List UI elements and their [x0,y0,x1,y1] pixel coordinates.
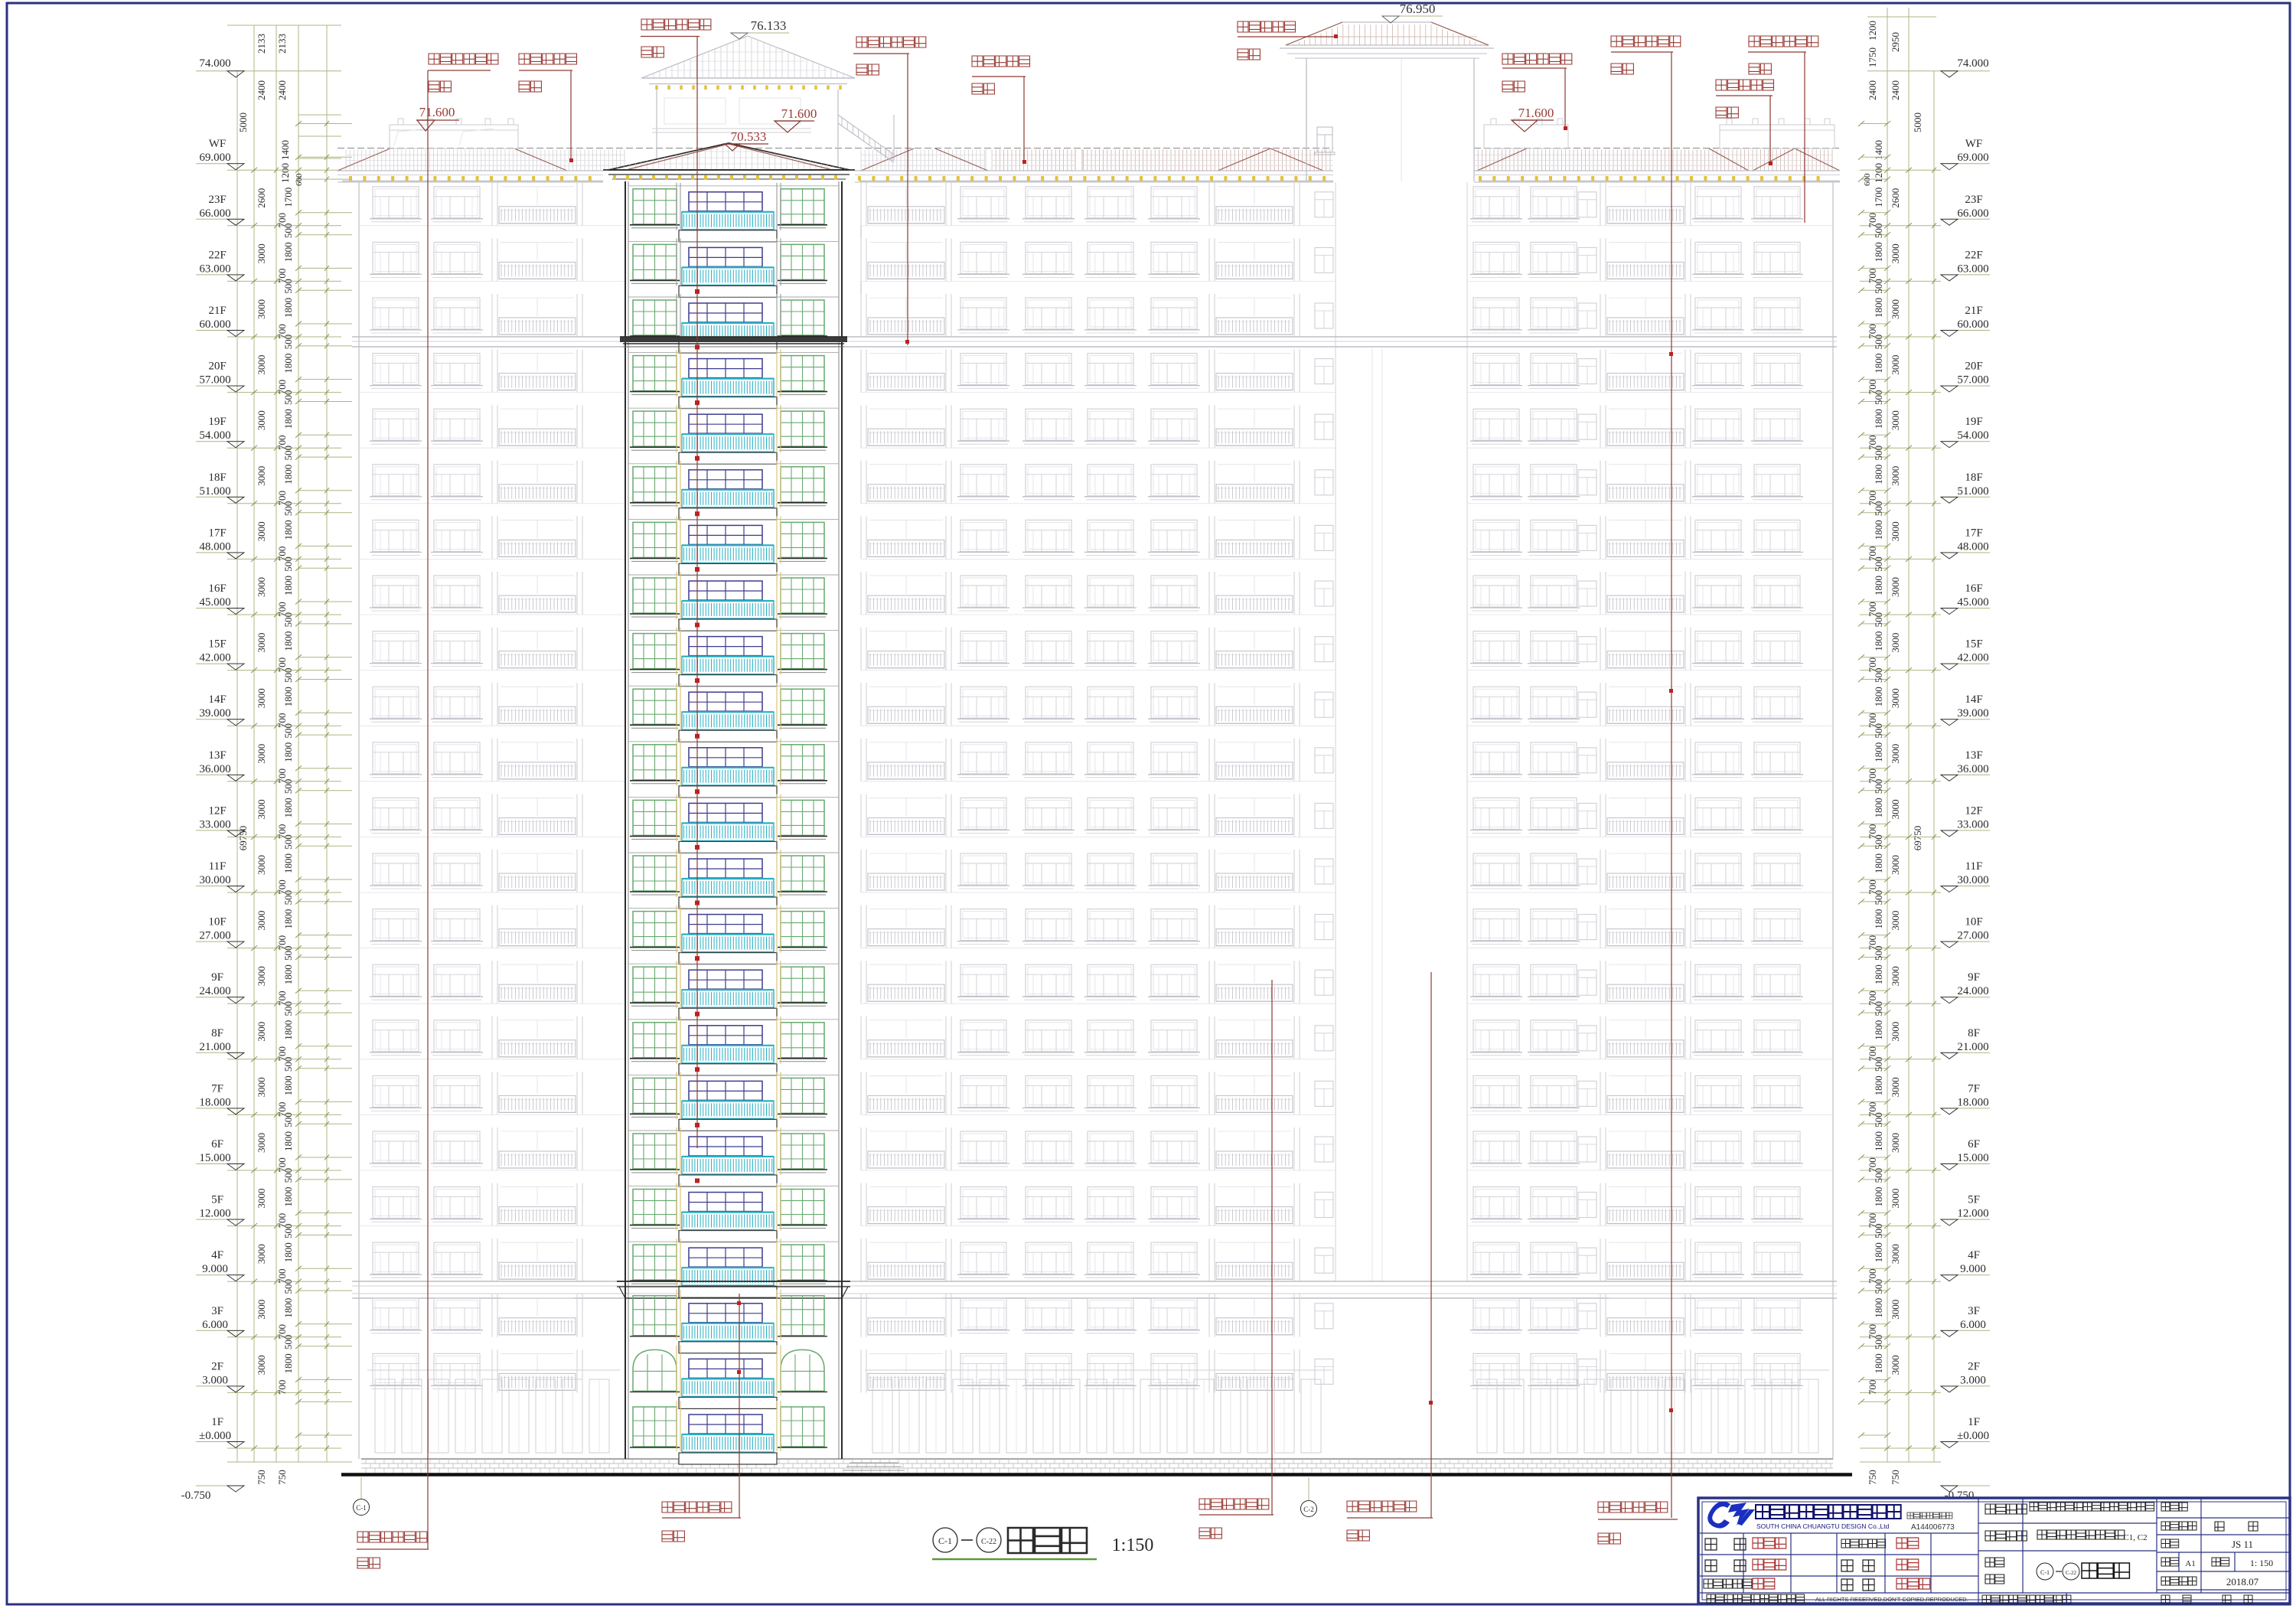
svg-text:1800: 1800 [282,1353,294,1373]
svg-text:500: 500 [282,723,294,739]
svg-text:1800: 1800 [1873,298,1884,318]
svg-text:48.000: 48.000 [1957,540,1988,553]
svg-text:1: 150: 1: 150 [2250,1558,2273,1568]
svg-text:3000: 3000 [256,1189,267,1209]
svg-text:11F: 11F [209,860,227,873]
svg-text:57.000: 57.000 [1957,374,1988,387]
svg-text:7F: 7F [211,1082,223,1095]
svg-text:1800: 1800 [282,964,294,984]
svg-text:21F: 21F [208,305,226,317]
svg-text:3000: 3000 [256,577,267,597]
svg-text:71.600: 71.600 [1518,106,1554,120]
svg-text:500: 500 [1873,556,1884,572]
svg-text:76.950: 76.950 [1400,2,1436,16]
svg-text:6.000: 6.000 [202,1319,228,1331]
svg-text:1750: 1750 [1867,47,1878,67]
svg-text:3000: 3000 [1890,855,1901,875]
svg-text:21.000: 21.000 [199,1041,230,1053]
svg-text:1800: 1800 [1873,1353,1884,1373]
svg-text:1800: 1800 [282,520,294,540]
svg-text:3000: 3000 [1890,1244,1901,1264]
svg-text:2600: 2600 [256,188,267,208]
svg-text:3000: 3000 [1890,1355,1901,1375]
svg-text:3000: 3000 [256,855,267,875]
svg-text:1800: 1800 [282,742,294,762]
svg-text:14F: 14F [1965,693,1982,706]
svg-text:5000: 5000 [1912,113,1923,132]
svg-text:500: 500 [282,1001,294,1016]
svg-text:15F: 15F [1965,638,1982,651]
svg-text:500: 500 [282,834,294,850]
svg-text:500: 500 [282,556,294,572]
svg-text:600: 600 [295,173,304,186]
svg-text:22F: 22F [1965,249,1982,261]
svg-text:3000: 3000 [256,688,267,708]
svg-text:13F: 13F [208,749,226,762]
svg-text:69750: 69750 [237,826,249,851]
svg-text:69.000: 69.000 [199,152,230,164]
svg-text:3000: 3000 [1890,799,1901,819]
svg-text:6F: 6F [211,1138,223,1150]
svg-text:3F: 3F [1968,1305,1980,1317]
svg-text:SOUTH CHINA CHUANGTU DESIGN Co: SOUTH CHINA CHUANGTU DESIGN Co.,Ltd [1756,1522,1890,1530]
svg-text:66.000: 66.000 [1957,207,1988,220]
svg-text:A1: A1 [2185,1559,2195,1568]
svg-text:3000: 3000 [1890,688,1901,708]
svg-text:10F: 10F [208,916,226,928]
svg-text:71.600: 71.600 [419,105,455,119]
svg-text:3000: 3000 [256,911,267,931]
svg-text:3000: 3000 [1890,744,1901,764]
svg-text:1800: 1800 [1873,1075,1884,1095]
svg-text:3000: 3000 [256,355,267,375]
svg-text:15F: 15F [208,638,226,651]
svg-text:12F: 12F [208,804,226,817]
svg-text:3000: 3000 [1890,355,1901,375]
svg-text:600: 600 [1863,173,1872,186]
svg-text:3000: 3000 [256,1133,267,1153]
svg-text:12.000: 12.000 [199,1208,230,1220]
svg-text:500: 500 [1873,445,1884,461]
svg-text:3000: 3000 [1890,633,1901,653]
svg-text:ALL RIGHTS RESERVED,DON'T COPI: ALL RIGHTS RESERVED,DON'T COPIED,REPRODU… [1815,1596,1968,1603]
svg-text:C-22: C-22 [2066,1570,2077,1576]
svg-text:3000: 3000 [1890,966,1901,986]
svg-text:74.000: 74.000 [199,57,230,70]
svg-text:2133: 2133 [256,34,267,54]
svg-text:1800: 1800 [1873,465,1884,485]
svg-text:4F: 4F [1968,1249,1980,1261]
svg-text:6F: 6F [1968,1138,1980,1150]
svg-text:63.000: 63.000 [199,263,230,275]
svg-text:500: 500 [1873,334,1884,350]
svg-text:23F: 23F [208,194,226,206]
svg-text:500: 500 [1873,1223,1884,1238]
svg-text:3000: 3000 [256,466,267,486]
svg-text:3000: 3000 [1890,1022,1901,1042]
svg-text:2018.07: 2018.07 [2226,1576,2259,1588]
svg-text:1800: 1800 [282,576,294,596]
svg-text:33.000: 33.000 [199,818,230,830]
svg-text:3000: 3000 [1890,299,1901,319]
svg-text:1800: 1800 [282,354,294,374]
svg-text:1800: 1800 [1873,242,1884,262]
svg-text:1800: 1800 [282,909,294,929]
svg-text:18.000: 18.000 [1957,1096,1988,1108]
svg-text:3000: 3000 [256,243,267,263]
svg-text:3000: 3000 [256,410,267,430]
svg-text:700: 700 [276,1380,288,1395]
svg-text:500: 500 [282,779,294,795]
svg-text:69750: 69750 [1912,826,1923,851]
svg-text:12.000: 12.000 [1957,1208,1988,1220]
svg-text:1F: 1F [211,1416,223,1428]
svg-text:500: 500 [282,1223,294,1238]
svg-text:500: 500 [1873,779,1884,795]
svg-text:2950: 2950 [1890,32,1901,52]
svg-text:3000: 3000 [1890,1189,1901,1209]
svg-text:51.000: 51.000 [1957,485,1988,498]
svg-text:3000: 3000 [1890,911,1901,931]
svg-text:3000: 3000 [256,1300,267,1320]
svg-text:3000: 3000 [256,799,267,819]
svg-text:1800: 1800 [1873,742,1884,762]
svg-text:9F: 9F [211,971,223,984]
svg-text:17F: 17F [208,527,226,539]
svg-text:3000: 3000 [256,299,267,319]
svg-text:3000: 3000 [1890,410,1901,430]
svg-text:54.000: 54.000 [199,429,230,442]
svg-text:500: 500 [282,667,294,683]
svg-text:8F: 8F [211,1027,223,1039]
svg-text:1200: 1200 [279,163,291,183]
svg-text:1800: 1800 [282,409,294,429]
svg-text:500: 500 [282,334,294,350]
svg-text:5F: 5F [211,1194,223,1206]
svg-text:24.000: 24.000 [1957,985,1988,997]
svg-text:1800: 1800 [282,853,294,873]
svg-text:750: 750 [1890,1470,1901,1485]
svg-text:500: 500 [1873,224,1884,239]
svg-text:1800: 1800 [282,1131,294,1151]
svg-text:1800: 1800 [282,1187,294,1207]
svg-text:15.000: 15.000 [199,1152,230,1164]
svg-text:13F: 13F [1965,749,1982,762]
svg-text:8F: 8F [1968,1027,1980,1039]
svg-text:1800: 1800 [282,298,294,318]
svg-text:1800: 1800 [282,465,294,485]
svg-text:1800: 1800 [1873,1131,1884,1151]
svg-text:3000: 3000 [256,1022,267,1042]
svg-text:2F: 2F [211,1360,223,1372]
svg-text:1800: 1800 [1873,853,1884,873]
svg-text:76.133: 76.133 [751,18,787,33]
svg-text:500: 500 [1873,1001,1884,1016]
svg-text:27.000: 27.000 [1957,930,1988,942]
svg-text:C-2: C-2 [1303,1506,1314,1513]
svg-text:C-1: C-1 [938,1535,952,1546]
svg-text:1800: 1800 [1873,1298,1884,1318]
svg-text:1700: 1700 [282,188,294,207]
svg-text:2600: 2600 [1890,188,1901,208]
svg-text:500: 500 [282,1057,294,1072]
svg-text:500: 500 [1873,501,1884,517]
svg-text:3F: 3F [211,1305,223,1317]
svg-text:1200: 1200 [1867,21,1878,41]
svg-text:42.000: 42.000 [199,652,230,664]
svg-text:1800: 1800 [1873,409,1884,429]
svg-text:23F: 23F [1965,194,1982,206]
svg-text:3000: 3000 [256,633,267,653]
svg-text:1800: 1800 [1873,1242,1884,1262]
svg-text:51.000: 51.000 [199,485,230,498]
svg-text:6.000: 6.000 [1960,1319,1986,1331]
svg-text:700: 700 [1867,1380,1878,1395]
svg-text:30.000: 30.000 [199,874,230,886]
svg-text:3000: 3000 [1890,577,1901,597]
svg-text:500: 500 [1873,1335,1884,1350]
svg-text:3000: 3000 [1890,1077,1901,1097]
svg-text:1800: 1800 [1873,964,1884,984]
svg-text:63.000: 63.000 [1957,263,1988,275]
svg-text:17F: 17F [1965,527,1982,539]
svg-text:500: 500 [282,1279,294,1294]
svg-text:1800: 1800 [282,1020,294,1040]
svg-text:1800: 1800 [282,1298,294,1318]
svg-text:12F: 12F [1965,804,1982,817]
svg-text:18.000: 18.000 [199,1096,230,1108]
svg-text:1800: 1800 [1873,687,1884,706]
svg-text:1800: 1800 [282,1242,294,1262]
svg-text:3000: 3000 [1890,1133,1901,1153]
svg-text:1800: 1800 [1873,520,1884,540]
svg-text:1:150: 1:150 [1112,1535,1154,1555]
svg-text:21.000: 21.000 [1957,1041,1988,1053]
svg-text:500: 500 [1873,723,1884,739]
svg-text:500: 500 [1873,890,1884,906]
svg-text:500: 500 [282,890,294,906]
svg-text:500: 500 [282,279,294,294]
svg-text:60.000: 60.000 [1957,318,1988,331]
svg-text:A144006773: A144006773 [1911,1523,1955,1532]
svg-text:22F: 22F [208,249,226,261]
svg-text:500: 500 [282,945,294,961]
svg-text:2400: 2400 [276,80,288,100]
svg-text:1800: 1800 [282,687,294,706]
svg-text:1800: 1800 [282,631,294,651]
svg-text:19F: 19F [1965,416,1982,428]
svg-text:1800: 1800 [1873,1187,1884,1207]
svg-text:30.000: 30.000 [1957,874,1988,886]
svg-text:5000: 5000 [237,113,249,132]
svg-text:3000: 3000 [256,744,267,764]
svg-text:500: 500 [282,501,294,517]
svg-text:18F: 18F [208,472,226,484]
svg-text:21F: 21F [1965,305,1982,317]
svg-text:1200: 1200 [1873,163,1884,183]
svg-text:36.000: 36.000 [199,763,230,775]
svg-text:3000: 3000 [1890,1300,1901,1320]
svg-text:66.000: 66.000 [199,207,230,220]
svg-text:57.000: 57.000 [199,374,230,387]
svg-text:14F: 14F [208,693,226,706]
svg-text:750: 750 [276,1470,288,1485]
svg-text:1800: 1800 [282,242,294,262]
svg-text:750: 750 [256,1470,267,1485]
svg-text:1800: 1800 [1873,631,1884,651]
svg-text:C-1: C-1 [356,1504,367,1512]
svg-text:20F: 20F [1965,361,1982,373]
svg-text:70.533: 70.533 [731,129,767,144]
svg-text:74.000: 74.000 [1957,57,1988,70]
svg-text:2400: 2400 [1867,80,1878,100]
svg-text:500: 500 [282,390,294,405]
svg-text:45.000: 45.000 [1957,596,1988,609]
svg-text:1F: 1F [1968,1416,1980,1428]
svg-text:3000: 3000 [1890,466,1901,486]
svg-text:33.000: 33.000 [1957,818,1988,830]
svg-text:500: 500 [1873,390,1884,405]
svg-text:39.000: 39.000 [199,707,230,720]
svg-text:C-22: C-22 [981,1538,996,1546]
svg-text:3.000: 3.000 [1960,1374,1986,1386]
svg-text:4F: 4F [211,1249,223,1261]
svg-text:3000: 3000 [256,1355,267,1375]
svg-text:±0.000: ±0.000 [1957,1430,1989,1442]
svg-text:500: 500 [1873,1057,1884,1072]
svg-text:54.000: 54.000 [1957,429,1988,442]
svg-text:1800: 1800 [1873,909,1884,929]
svg-text:500: 500 [1873,279,1884,294]
svg-text:3000: 3000 [256,521,267,541]
svg-text:9.000: 9.000 [202,1263,228,1275]
svg-text:±0.000: ±0.000 [199,1430,231,1442]
svg-text:500: 500 [282,1335,294,1350]
svg-text:19F: 19F [208,416,226,428]
svg-text:3000: 3000 [256,966,267,986]
svg-text:3000: 3000 [256,1077,267,1097]
svg-text:500: 500 [282,224,294,239]
svg-text:24.000: 24.000 [199,985,230,997]
svg-text:1800: 1800 [282,798,294,817]
svg-text:500: 500 [1873,945,1884,961]
svg-text:C1, C2: C1, C2 [2123,1533,2147,1542]
svg-text:5F: 5F [1968,1194,1980,1206]
svg-text:18F: 18F [1965,472,1982,484]
svg-text:1800: 1800 [1873,1020,1884,1040]
svg-text:7F: 7F [1968,1082,1980,1095]
svg-text:42.000: 42.000 [1957,652,1988,664]
svg-text:9.000: 9.000 [1960,1263,1986,1275]
svg-text:3000: 3000 [256,1244,267,1264]
svg-text:500: 500 [1873,1168,1884,1183]
svg-text:45.000: 45.000 [199,596,230,609]
svg-text:500: 500 [282,1112,294,1127]
svg-text:WF: WF [209,138,227,150]
svg-text:500: 500 [1873,1112,1884,1127]
svg-text:1800: 1800 [1873,354,1884,374]
svg-text:WF: WF [1965,138,1983,150]
svg-text:69.000: 69.000 [1957,152,1988,164]
svg-text:39.000: 39.000 [1957,707,1988,720]
svg-text:16F: 16F [208,582,226,595]
svg-text:2400: 2400 [256,80,267,100]
svg-text:1800: 1800 [1873,798,1884,817]
svg-text:500: 500 [1873,667,1884,683]
svg-text:500: 500 [1873,612,1884,628]
svg-text:2133: 2133 [276,34,288,54]
svg-text:48.000: 48.000 [199,540,230,553]
svg-text:750: 750 [1867,1470,1878,1485]
svg-text:2400: 2400 [1890,80,1901,100]
svg-text:36.000: 36.000 [1957,763,1988,775]
svg-text:3.000: 3.000 [202,1374,228,1386]
svg-text:20F: 20F [208,361,226,373]
svg-text:16F: 16F [1965,582,1982,595]
svg-text:-0.750: -0.750 [181,1490,211,1502]
svg-text:500: 500 [282,1168,294,1183]
svg-text:1800: 1800 [1873,576,1884,596]
svg-text:27.000: 27.000 [199,930,230,942]
svg-text:500: 500 [1873,834,1884,850]
svg-text:500: 500 [282,612,294,628]
svg-text:1400: 1400 [279,140,291,160]
svg-text:15.000: 15.000 [1957,1152,1988,1164]
svg-text:500: 500 [1873,1279,1884,1294]
svg-text:2F: 2F [1968,1360,1980,1372]
svg-text:10F: 10F [1965,916,1982,928]
svg-text:3000: 3000 [1890,243,1901,263]
svg-text:3000: 3000 [1890,521,1901,541]
svg-text:9F: 9F [1968,971,1980,984]
svg-text:1700: 1700 [1873,188,1884,207]
svg-text:11F: 11F [1965,860,1983,873]
svg-text:500: 500 [282,445,294,461]
svg-text:1800: 1800 [282,1075,294,1095]
svg-text:60.000: 60.000 [199,318,230,331]
svg-text:71.600: 71.600 [781,106,817,121]
svg-text:C-1: C-1 [2040,1569,2050,1576]
svg-text:JS 11: JS 11 [2232,1539,2253,1550]
